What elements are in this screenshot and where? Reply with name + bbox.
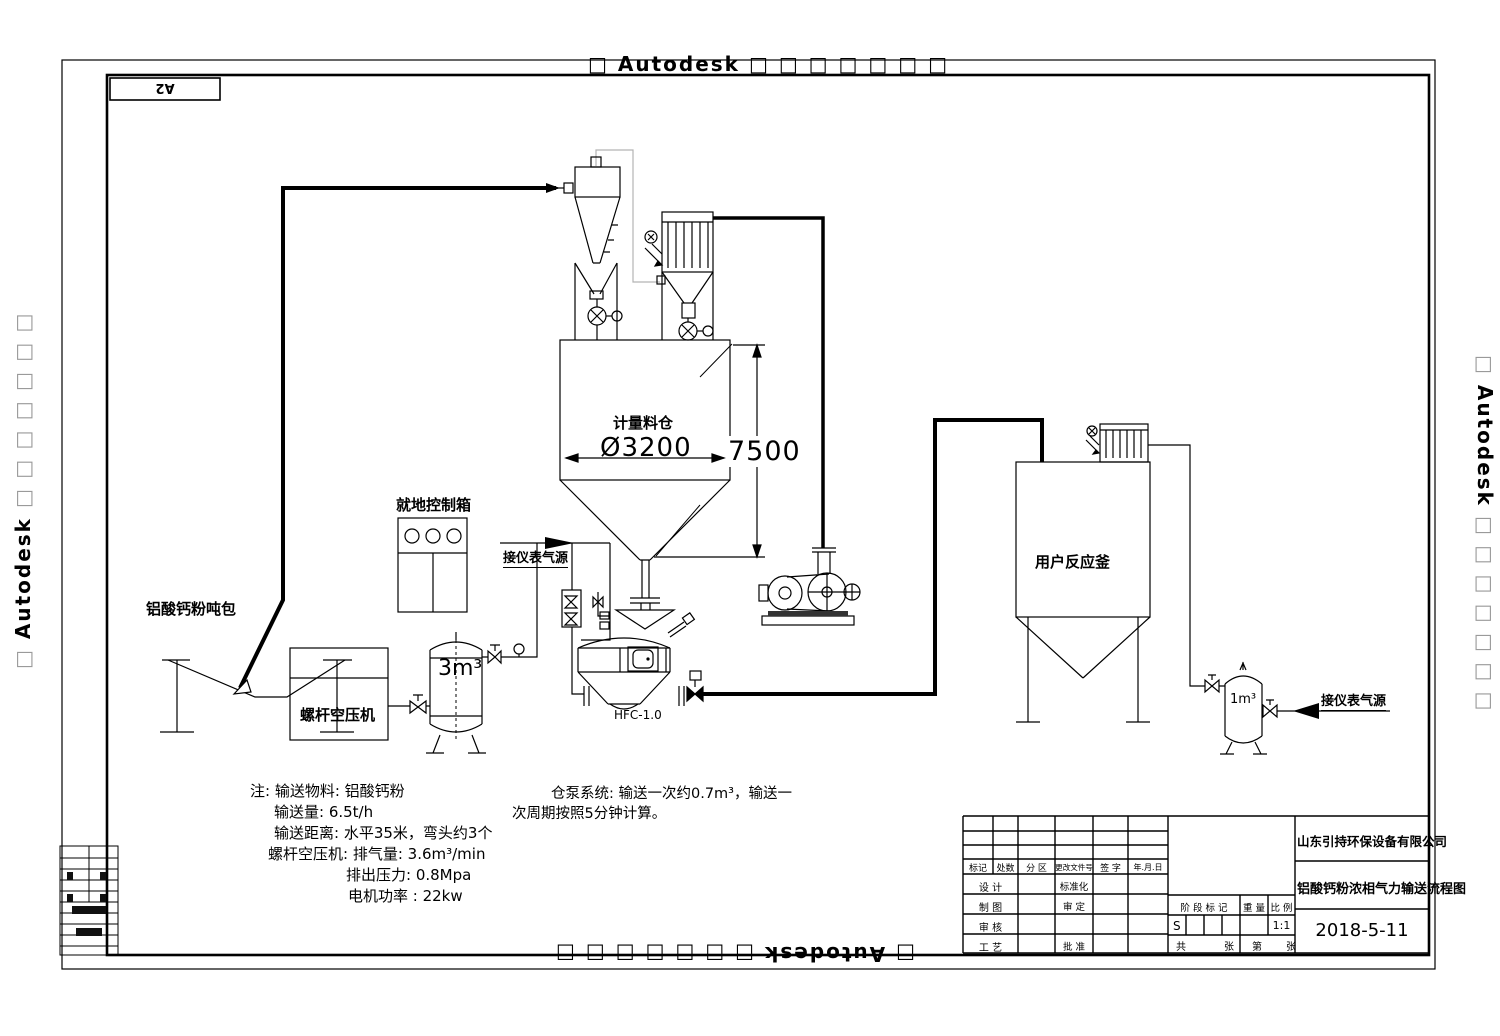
watermark-box: □ [588,52,609,76]
tb-page-word: 张 [1286,938,1296,953]
watermark-box: □ [894,942,915,966]
tb-col-count: 处数 [993,861,1018,874]
vent-filter [1086,424,1148,462]
tb-col-mark: 标记 [963,861,993,874]
air-tank-3m3-label: 3m³ [438,656,482,681]
watermark-right: □ Autodesk □ □ □ □ □ □ □ [1473,355,1497,665]
vacuum-pump [759,548,860,625]
watermark-brand: Autodesk [11,517,35,639]
watermark-brand: Autodesk [618,52,740,76]
drawing-frame [62,60,1435,969]
tb-stage-value: S [1173,919,1181,933]
tb-std: 标准化 [1055,879,1093,893]
reactor-label: 用户反应釜 [1035,551,1110,572]
instrument-air-label-left: 接仪表气源 [503,547,568,568]
instrument-air-label-right: 接仪表气源 [1321,690,1386,711]
tb-sheet-word: 张 [1224,938,1234,953]
watermark-box: □ [11,648,35,669]
tb-drawing-title: 铝酸钙粉浓相气力输送流程图 [1297,878,1427,897]
tb-total-label: 共 [1176,938,1186,953]
watermark-bottom: □ Autodesk □ □ □ □ □ □ □ [605,942,915,966]
tb-approve2: 批 准 [1055,939,1093,953]
note-line-4: 螺杆空压机: 排气量: 3.6m³/min [268,843,485,864]
note-line-6: 电机功率 : 22kw [348,885,463,906]
ton-bag-label: 铝酸钙粉吨包 [146,598,236,619]
tb-col-date: 年.月.日 [1128,862,1168,873]
tb-approve1: 审 定 [1055,899,1093,913]
reactor [1016,462,1150,722]
tb-row-draw: 制 图 [963,899,1018,914]
tb-col-docno: 更改文件号 [1055,862,1093,873]
hfc-bin-pump [562,590,703,709]
watermark-boxes: □ □ □ □ □ □ □ [554,942,754,966]
tb-col-sign: 签 字 [1093,861,1128,874]
tb-scale-label: 比 例 [1268,900,1295,914]
compressor-label: 螺杆空压机 [300,704,375,725]
tb-col-zone: 分 区 [1018,861,1055,874]
watermark-box: □ [1473,355,1497,376]
hfc-pump-label: HFC-1.0 [614,708,662,722]
air-lines [388,445,1390,711]
air-tank-1m3 [1205,662,1277,754]
gas-line [596,150,660,282]
instrument-air-arrow-right [1293,703,1319,719]
cyclone [556,157,622,340]
tb-page-label: 第 [1252,938,1262,953]
tb-weight-label: 重 量 [1240,900,1268,914]
screw-compressor [290,648,388,740]
sheet-size-label: A2 [112,80,218,95]
tb-row-check: 审 核 [963,919,1018,934]
local-control-box [398,518,467,612]
watermark-boxes: □ □ □ □ □ □ □ [11,312,35,508]
watermark-brand: Autodesk [1473,385,1497,507]
note-line-1: 注: 输送物料: 铝酸钙粉 [250,780,405,801]
silo-label: 计量料仓 [613,412,673,433]
dim-height-text: 7500 [726,436,803,467]
tb-date: 2018-5-11 [1297,920,1427,941]
watermark-left: □ Autodesk □ □ □ □ □ □ □ [11,359,35,669]
air-tank-1m3-label: 1m³ [1230,692,1256,707]
air-tank-3m3 [410,632,524,753]
watermark-top: □ Autodesk □ □ □ □ □ □ □ [588,52,949,76]
corner-block [60,846,118,955]
bag-filter [645,212,713,340]
note-line-5: 排出压力: 0.8Mpa [346,864,471,885]
tb-row-design: 设 计 [963,879,1018,894]
tb-company: 山东引持环保设备有限公司 [1297,831,1427,850]
watermark-boxes: □ □ □ □ □ □ □ [749,52,949,76]
tb-row-process: 工 艺 [963,939,1018,954]
process-diagram [0,0,1500,1036]
control-box-label: 就地控制箱 [396,494,471,515]
dim-diameter-text: Ø3200 [600,433,692,463]
watermark-boxes: □ □ □ □ □ □ □ [1473,516,1497,712]
watermark-brand: Autodesk [763,942,885,966]
note-line-2: 输送量: 6.5t/h [274,801,373,822]
pump-note-line-2: 次周期按照5分钟计算。 [512,802,666,823]
tb-stage-label: 阶 段 标 记 [1168,900,1240,914]
drawing-sheet: □ Autodesk □ □ □ □ □ □ □ □ Autodesk □ □ … [0,0,1500,1036]
metering-silo [560,340,730,598]
pump-note-line-1: 仓泵系统: 输送一次约0.7m³，输送一 [551,782,792,803]
note-line-3: 输送距离: 水平35米，弯头约3个 [274,822,492,843]
tb-scale-value: 1:1 [1268,919,1295,932]
